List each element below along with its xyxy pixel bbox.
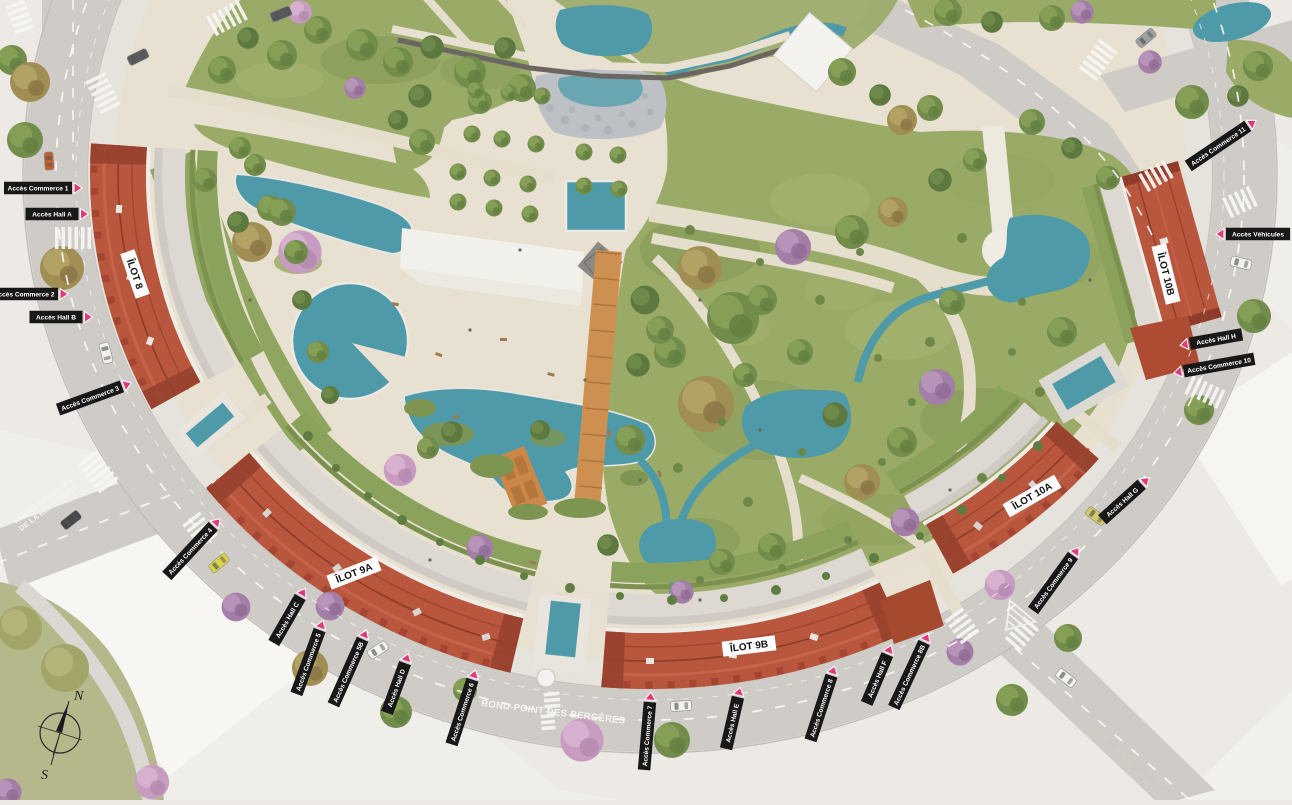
svg-text:Accès Commerce 1: Accès Commerce 1: [8, 186, 69, 193]
svg-text:N: N: [73, 689, 84, 704]
svg-text:S: S: [41, 768, 48, 783]
svg-text:Accès Commerce 2: Accès Commerce 2: [0, 292, 55, 299]
svg-text:Accès Hall A: Accès Hall A: [32, 212, 72, 219]
svg-text:Accès Véhicules: Accès Véhicules: [1232, 232, 1284, 239]
svg-text:Accès Hall B: Accès Hall B: [36, 315, 76, 322]
